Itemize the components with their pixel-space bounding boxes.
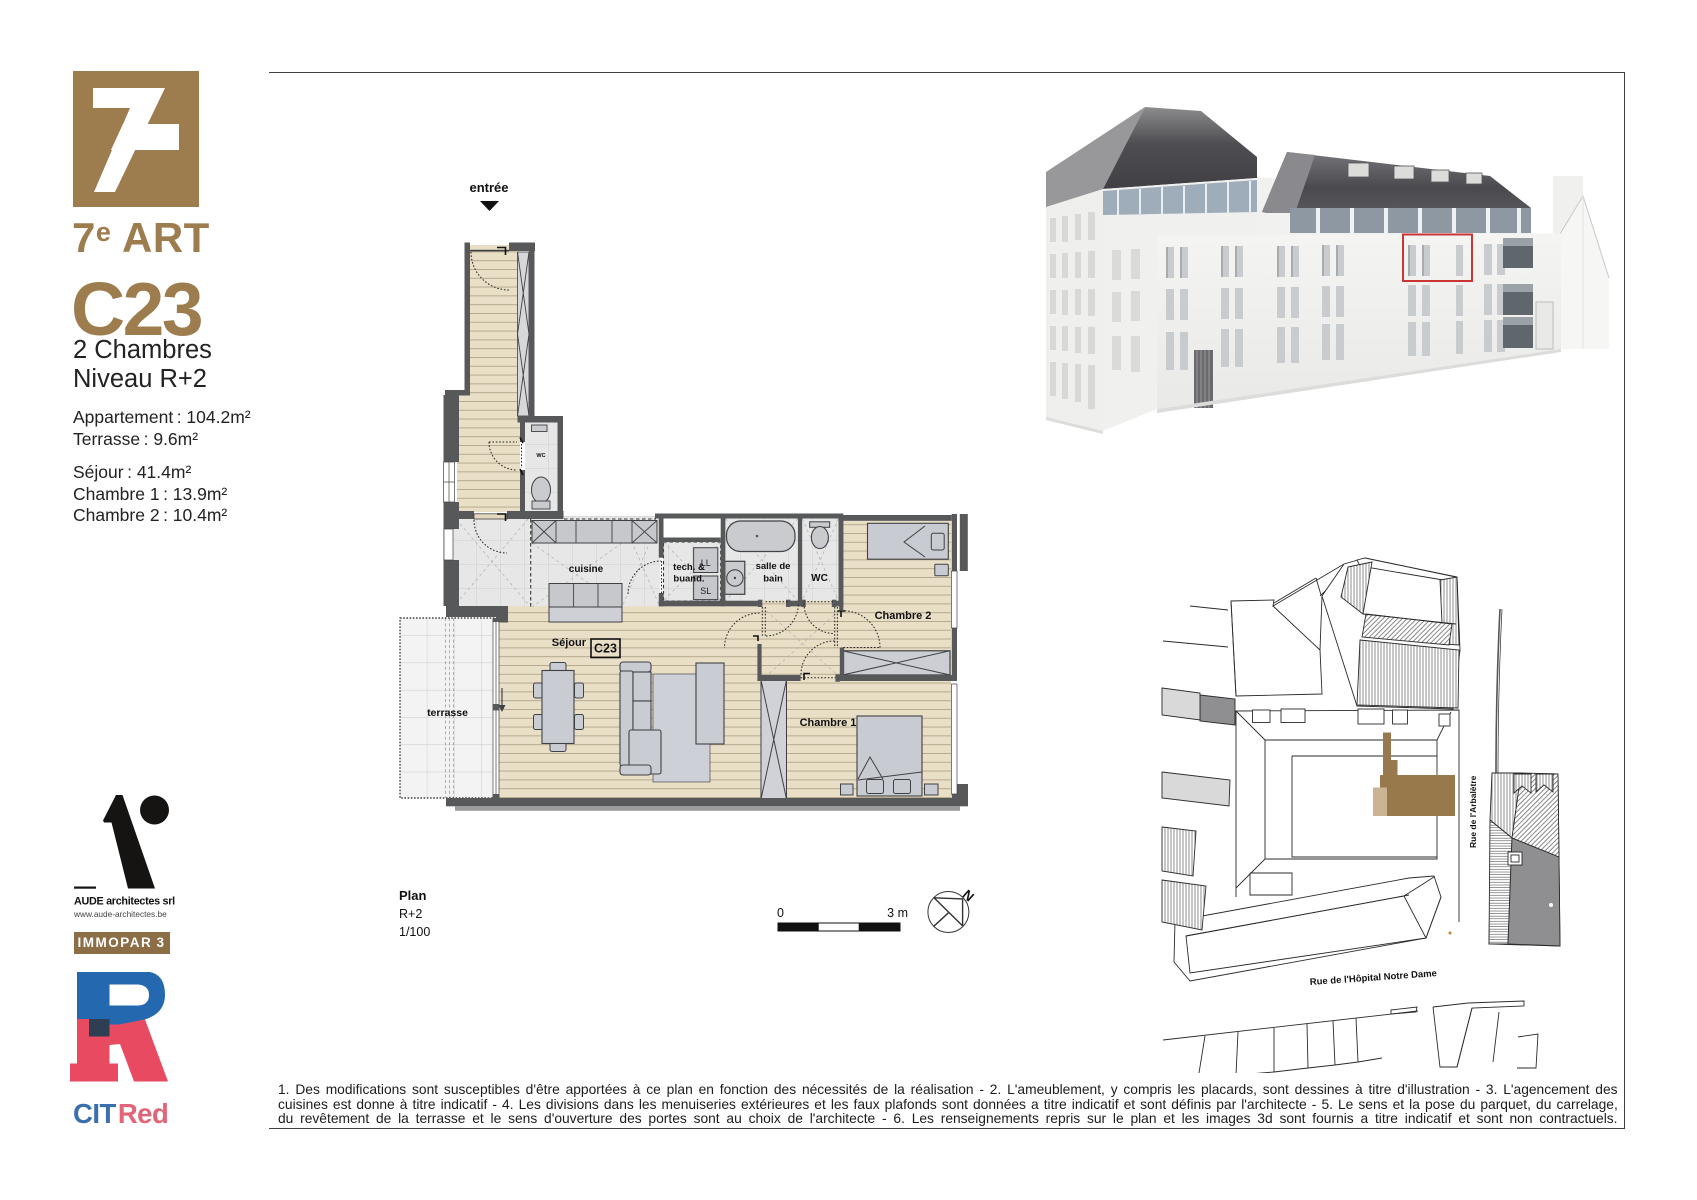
svg-text:Chambre 2: Chambre 2 [875,610,932,622]
svg-text:entrée: entrée [469,180,508,195]
svg-text:bain: bain [763,574,783,585]
svg-text:www.aude-architectes.be: www.aude-architectes.be [73,909,167,919]
svg-text:3 m: 3 m [887,906,908,920]
svg-text:WC: WC [811,573,828,584]
svg-text:WC: WC [536,453,545,459]
svg-text:Plan: Plan [399,888,427,903]
svg-text:cuisine: cuisine [569,564,604,575]
svg-text:Rue de l'Hôpital Notre Dame: Rue de l'Hôpital Notre Dame [1309,968,1437,988]
svg-text:Chambre 1: Chambre 1 [800,717,857,729]
svg-text:tech. &: tech. & [673,562,705,573]
svg-text:CITRed: CITRed [73,1098,168,1129]
svg-text:terrasse: terrasse [427,707,468,719]
svg-text:C23: C23 [594,642,617,656]
svg-text:R+2: R+2 [399,907,422,921]
svg-text:AUDE architectes srl: AUDE architectes srl [74,896,175,908]
svg-text:Séjour: Séjour [552,637,587,649]
svg-text:salle de: salle de [756,561,791,572]
svg-text:Rue de l'Arbalètre: Rue de l'Arbalètre [1468,775,1478,848]
svg-text:1/100: 1/100 [399,925,430,939]
svg-text:SL: SL [700,586,711,596]
svg-text:buand.: buand. [673,574,704,585]
svg-text:0: 0 [777,906,784,920]
